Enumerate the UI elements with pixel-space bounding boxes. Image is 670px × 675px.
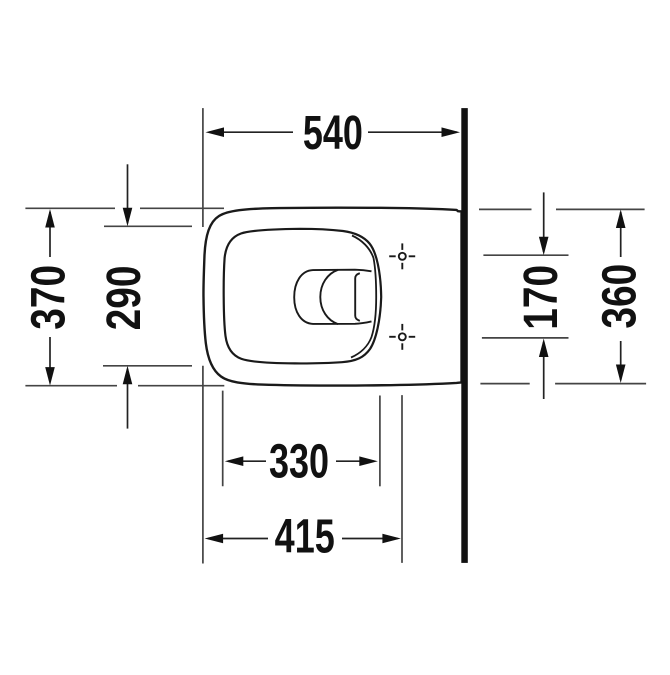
svg-text:540: 540 [303, 106, 363, 159]
svg-text:290: 290 [97, 265, 151, 330]
svg-text:415: 415 [275, 510, 335, 563]
svg-text:370: 370 [21, 265, 75, 330]
svg-text:330: 330 [269, 435, 329, 488]
svg-text:360: 360 [593, 264, 647, 329]
svg-text:170: 170 [514, 265, 568, 330]
